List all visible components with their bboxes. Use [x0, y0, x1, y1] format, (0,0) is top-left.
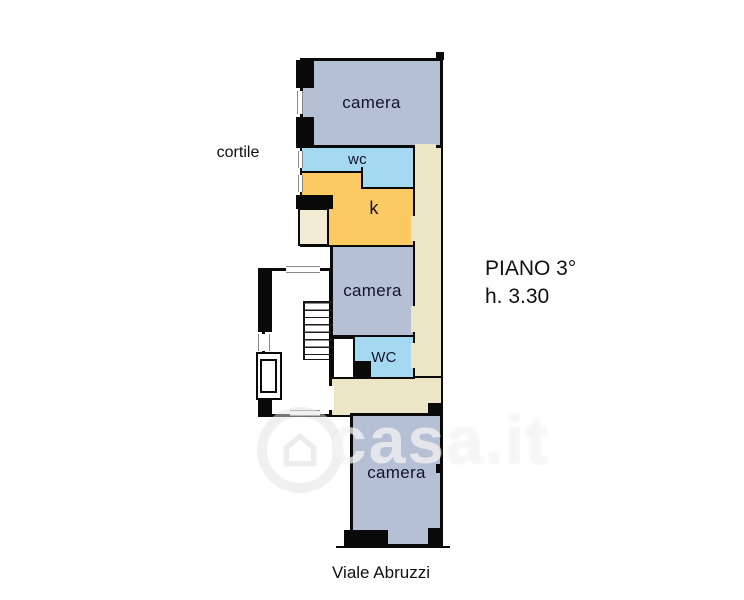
- closet: [332, 337, 355, 379]
- wall-segment: [258, 268, 272, 332]
- wall-segment: [296, 195, 333, 209]
- door-kitchen: [411, 216, 415, 241]
- watermark-text: casa.it: [330, 409, 549, 471]
- wall-segment: [296, 60, 314, 88]
- wall-tick: [436, 52, 444, 60]
- balcony: [298, 208, 329, 246]
- floor-plan: camera wc k camera WC camera cortile PIA…: [0, 0, 744, 600]
- floor-label: PIANO 3°: [485, 255, 615, 283]
- wall-segment: [296, 117, 314, 148]
- window-kitchen: [298, 175, 303, 192]
- wall-segment: [428, 528, 443, 547]
- door-camera-middle: [411, 306, 415, 332]
- floor-info: PIANO 3° h. 3.30: [485, 255, 615, 311]
- wall-baseline: [336, 546, 450, 548]
- room-wc-top-notch: [361, 167, 415, 189]
- wall-segment: [355, 361, 371, 378]
- window-wc-top: [298, 151, 303, 168]
- stairs: [303, 301, 333, 360]
- courtyard-label: cortile: [203, 144, 273, 162]
- wall-segment: [258, 398, 272, 417]
- window-camera-top: [297, 91, 303, 114]
- door-wc-middle: [411, 343, 415, 368]
- street-label: Viale Abruzzi: [316, 563, 446, 583]
- house-icon: [281, 431, 319, 469]
- ceiling-height-label: h. 3.30: [485, 283, 615, 311]
- room-camera-top: [300, 58, 443, 148]
- room-camera-middle: [330, 245, 415, 337]
- window-stairwell-left: [258, 334, 270, 351]
- door-camera-top: [415, 144, 436, 149]
- window-stairwell-top: [286, 266, 320, 273]
- elevator-cab: [260, 359, 277, 393]
